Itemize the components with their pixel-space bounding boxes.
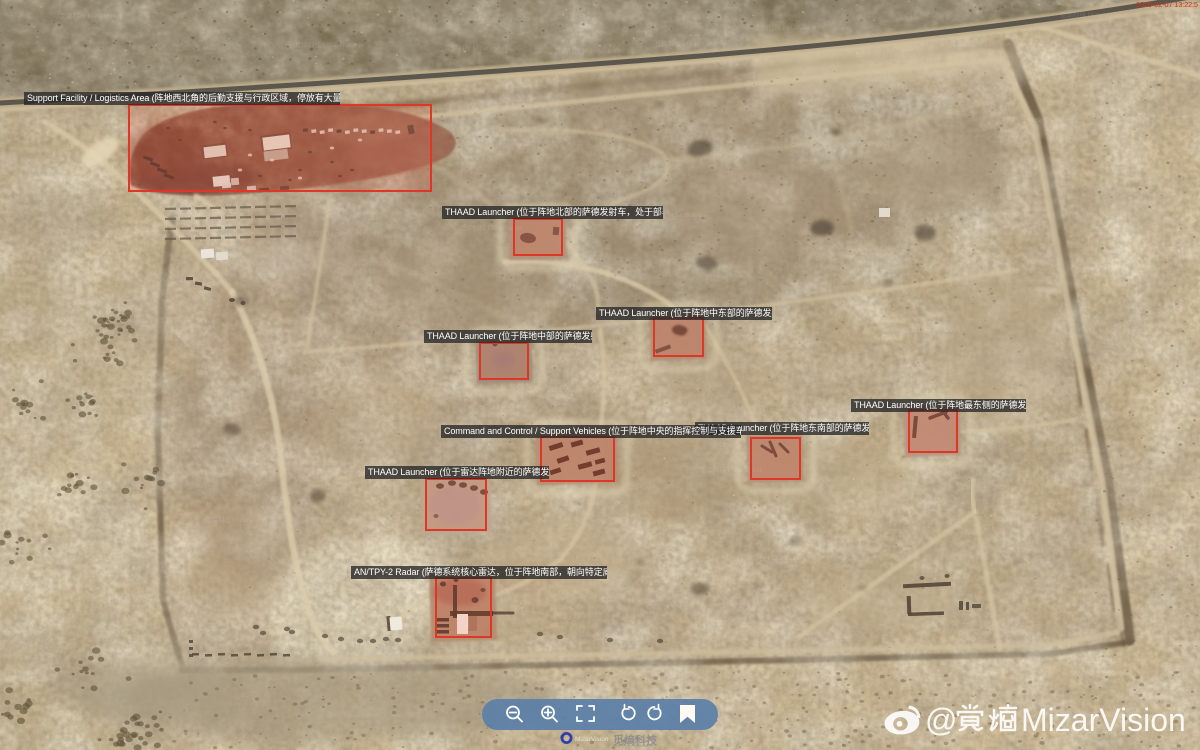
svg-text:觅熵科技 MizarVision: 觅熵科技 MizarVision: [205, 515, 267, 524]
svg-text:觅熵科技 MizarVision: 觅熵科技 MizarVision: [1150, 245, 1200, 254]
svg-text:觅熵科技 MizarVision: 觅熵科技 MizarVision: [1130, 111, 1192, 120]
svg-text:MizarVision: MizarVision: [575, 736, 609, 743]
svg-text:觅熵科技 MizarVision: 觅熵科技 MizarVision: [950, 39, 1012, 48]
svg-text:觅熵科技 MizarVision: 觅熵科技 MizarVision: [905, 325, 967, 334]
svg-text:觅熵科技 MizarVision: 觅熵科技 MizarVision: [105, 595, 167, 604]
svg-text:觅熵科技 MizarVision: 觅熵科技 MizarVision: [1050, 445, 1112, 454]
svg-text:觅熵科技 MizarVision: 觅熵科技 MizarVision: [175, 43, 237, 52]
svg-text:觅熵科技 MizarVision: 觅熵科技 MizarVision: [855, 50, 917, 59]
svg-text:觅熵科技: 觅熵科技: [613, 733, 658, 747]
svg-text:觅熵科技 MizarVision: 觅熵科技 MizarVision: [1000, 115, 1062, 124]
svg-text:@: @: [925, 702, 957, 738]
svg-text:觅熵科技 MizarVision: 觅熵科技 MizarVision: [520, 385, 582, 394]
svg-text:觅熵科技 MizarVision: 觅熵科技 MizarVision: [1060, 10, 1122, 19]
svg-text:觅熵科技 MizarVision: 觅熵科技 MizarVision: [60, 11, 122, 20]
svg-text:觅熵科技 MizarVision: 觅熵科技 MizarVision: [740, 553, 802, 562]
svg-text:觅熵科技 MizarVision: 觅熵科技 MizarVision: [555, 46, 617, 55]
svg-text:觅熵科技 MizarVision: 觅熵科技 MizarVision: [300, 229, 362, 238]
svg-text:觅熵科技 MizarVision: 觅熵科技 MizarVision: [1150, 545, 1200, 554]
svg-text:觅熵科技 MizarVision: 觅熵科技 MizarVision: [445, 43, 507, 52]
svg-text:觅熵科技 MizarVision: 觅熵科技 MizarVision: [755, 23, 817, 32]
svg-text:觅熵科技 MizarVision: 觅熵科技 MizarVision: [85, 198, 147, 207]
svg-text:MizarVision: MizarVision: [1021, 702, 1186, 738]
svg-text:觅熵科技 MizarVision: 觅熵科技 MizarVision: [160, 315, 222, 324]
svg-text:觅熵科技 MizarVision: 觅熵科技 MizarVision: [655, 39, 717, 48]
svg-text:觅熵科技 MizarVision: 觅熵科技 MizarVision: [840, 140, 902, 149]
svg-text:觅熵科技 MizarVision: 觅熵科技 MizarVision: [600, 595, 662, 604]
svg-text:觅熵科技 MizarVision: 觅熵科技 MizarVision: [295, 40, 357, 49]
svg-text:觅熵科技 MizarVision: 觅熵科技 MizarVision: [360, 413, 422, 422]
